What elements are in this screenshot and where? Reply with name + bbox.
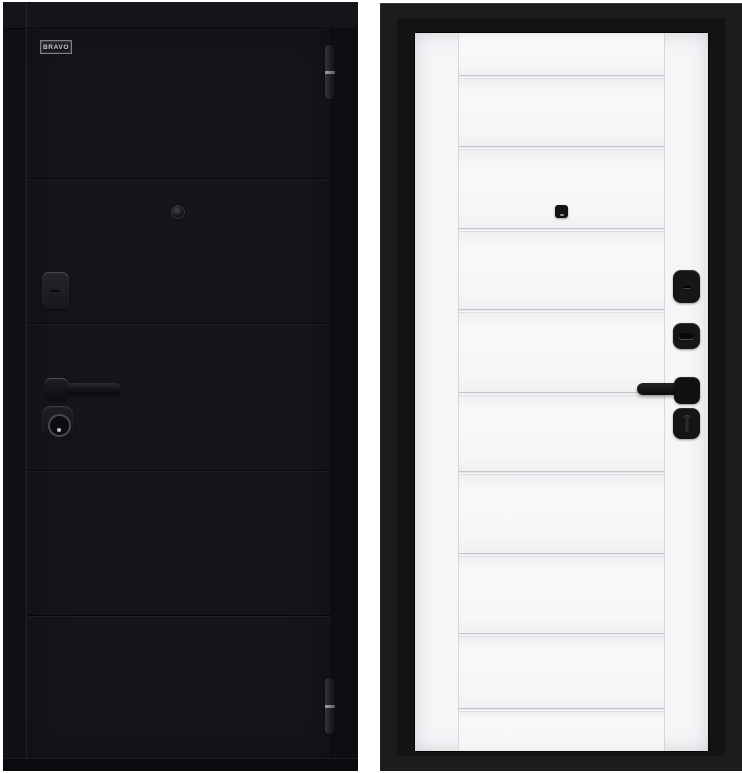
- keyhole-icon: [48, 414, 71, 437]
- cylinder-cover-icon: [673, 323, 700, 349]
- right-door-panel: [459, 475, 664, 553]
- brand-badge: BRAVO: [40, 40, 72, 54]
- handle-rose-icon: [674, 377, 700, 404]
- keyhole-cover-icon: [673, 270, 700, 303]
- left-door-jamb-right: [332, 28, 358, 758]
- right-door-panel-column: [458, 33, 665, 751]
- product-photo: BRAVO: [0, 0, 742, 773]
- lock-cover-icon: [42, 272, 69, 309]
- top-hinge-icon: [325, 45, 335, 99]
- right-door-panel: [459, 637, 664, 708]
- left-door-panel: [28, 470, 331, 615]
- bottom-hinge-icon: [325, 678, 335, 734]
- right-door-panel: [459, 232, 664, 309]
- thumbturn-icon: [673, 408, 700, 439]
- left-door-sill: [3, 758, 358, 771]
- right-door-panel: [459, 396, 664, 471]
- left-door-panel: [28, 28, 331, 178]
- left-door-panel: [28, 178, 331, 323]
- left-door-jamb-line: [26, 4, 27, 758]
- right-door-interior: [380, 3, 742, 771]
- cylinder-escutcheon-icon: [42, 406, 73, 441]
- peephole-icon: [171, 205, 185, 219]
- left-door-panel: [28, 323, 331, 470]
- left-door-exterior: BRAVO: [3, 2, 358, 771]
- left-door-panel: [28, 615, 331, 758]
- right-door-panel: [459, 557, 664, 633]
- handle-rose-icon: [45, 378, 68, 402]
- left-door-frame-header: [3, 2, 358, 29]
- right-door-panel: [459, 712, 664, 751]
- right-door-panel: [459, 33, 664, 75]
- peephole-icon: [555, 205, 568, 218]
- right-door-panel: [459, 313, 664, 392]
- right-door-panel: [459, 79, 664, 146]
